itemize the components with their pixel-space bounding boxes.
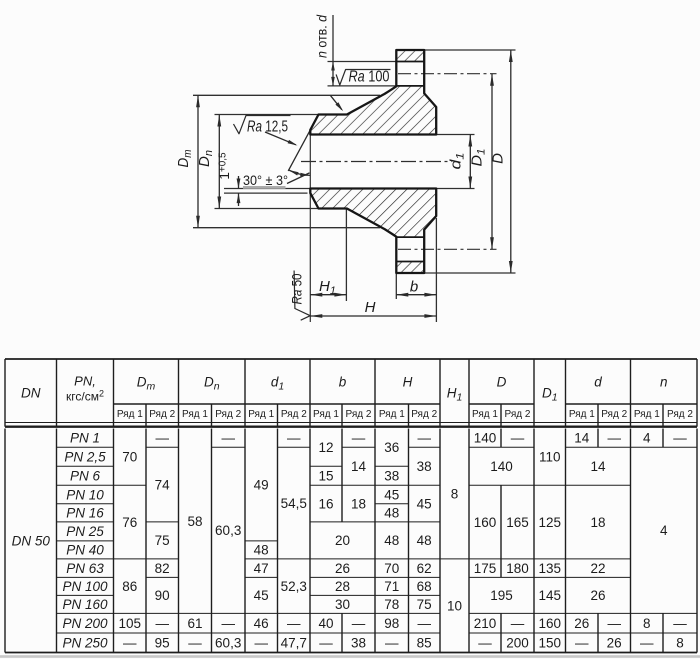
svg-text:47: 47: [254, 561, 269, 576]
svg-text:PN 6: PN 6: [70, 469, 101, 484]
svg-text:74: 74: [155, 477, 171, 492]
svg-text:22: 22: [590, 561, 605, 576]
svg-text:195: 195: [490, 588, 513, 603]
svg-text:16: 16: [318, 496, 333, 511]
svg-text:—: —: [254, 636, 268, 651]
svg-text:85: 85: [417, 636, 432, 651]
svg-text:98: 98: [384, 616, 399, 631]
svg-text:45: 45: [254, 588, 269, 603]
svg-text:—: —: [221, 616, 235, 631]
svg-text:175: 175: [474, 561, 497, 576]
svg-text:PN 25: PN 25: [66, 524, 104, 539]
svg-text:82: 82: [155, 561, 170, 576]
svg-text:90: 90: [155, 588, 170, 603]
svg-text:PN,: PN,: [74, 374, 96, 389]
svg-text:—: —: [575, 636, 589, 651]
svg-text:—: —: [287, 431, 301, 446]
svg-text:Ряд 2: Ряд 2: [346, 409, 372, 420]
svg-text:76: 76: [122, 515, 137, 530]
svg-text:38: 38: [384, 469, 399, 484]
svg-text:54,5: 54,5: [281, 496, 307, 511]
svg-text:165: 165: [506, 515, 529, 530]
svg-text:68: 68: [417, 579, 432, 594]
svg-text:n отв. d: n отв. d: [315, 15, 330, 58]
svg-text:Ряд 1: Ряд 1: [117, 409, 143, 420]
svg-text:48: 48: [417, 533, 432, 548]
svg-text:—: —: [352, 431, 366, 446]
svg-text:210: 210: [474, 616, 497, 631]
svg-text:18: 18: [590, 515, 605, 530]
svg-text:—: —: [417, 431, 431, 446]
svg-text:160: 160: [539, 616, 562, 631]
svg-text:PN 100: PN 100: [62, 579, 108, 594]
svg-text:—: —: [673, 431, 687, 446]
svg-text:—: —: [385, 636, 399, 651]
svg-text:52,3: 52,3: [281, 579, 307, 594]
svg-text:PN 250: PN 250: [62, 636, 108, 651]
svg-text:Ряд 1: Ряд 1: [313, 409, 339, 420]
svg-text:38: 38: [351, 636, 366, 651]
svg-text:30° ± 3°: 30° ± 3°: [243, 172, 288, 188]
svg-text:—: —: [511, 616, 525, 631]
svg-text:—: —: [352, 616, 366, 631]
svg-text:46: 46: [254, 616, 269, 631]
svg-text:Ряд 2: Ряд 2: [601, 409, 627, 420]
svg-text:—: —: [511, 431, 525, 446]
svg-text:86: 86: [122, 579, 137, 594]
svg-text:Ra 12,5: Ra 12,5: [247, 119, 288, 136]
svg-text:4: 4: [643, 431, 651, 446]
svg-text:—: —: [287, 616, 301, 631]
svg-text:10: 10: [447, 599, 462, 614]
svg-text:—: —: [640, 636, 654, 651]
svg-text:Ряд 1: Ряд 1: [569, 409, 595, 420]
svg-text:—: —: [417, 616, 431, 631]
svg-text:14: 14: [574, 431, 590, 446]
svg-text:15: 15: [318, 469, 333, 484]
svg-text:DN: DN: [21, 385, 41, 400]
svg-text:160: 160: [474, 515, 497, 530]
svg-text:DN 50: DN 50: [12, 533, 51, 548]
svg-text:71: 71: [384, 579, 399, 594]
svg-text:60,3: 60,3: [215, 523, 241, 538]
svg-text:Ряд 2: Ряд 2: [667, 409, 693, 420]
svg-text:—: —: [478, 636, 492, 651]
svg-text:36: 36: [384, 440, 399, 455]
svg-text:—: —: [155, 431, 169, 446]
svg-text:H: H: [365, 299, 376, 316]
svg-text:135: 135: [539, 561, 562, 576]
svg-text:75: 75: [417, 597, 432, 612]
svg-text:140: 140: [474, 431, 497, 446]
svg-text:145: 145: [539, 588, 562, 603]
svg-text:d: d: [594, 375, 602, 390]
svg-text:H: H: [403, 375, 413, 390]
svg-text:PN 10: PN 10: [66, 487, 104, 502]
svg-text:—: —: [188, 636, 202, 651]
svg-text:62: 62: [417, 561, 432, 576]
svg-text:47,7: 47,7: [281, 636, 307, 651]
svg-text:150: 150: [539, 636, 562, 651]
svg-text:70: 70: [384, 561, 399, 576]
svg-text:—: —: [155, 616, 169, 631]
svg-text:кгс/см2: кгс/см2: [66, 389, 104, 404]
svg-text:8: 8: [451, 487, 459, 502]
svg-text:n: n: [660, 375, 668, 390]
svg-text:—: —: [221, 431, 235, 446]
svg-text:Ряд 1: Ряд 1: [379, 409, 405, 420]
svg-text:75: 75: [155, 533, 170, 548]
svg-text:28: 28: [335, 579, 350, 594]
svg-text:b: b: [339, 375, 347, 390]
svg-text:PN 16: PN 16: [66, 506, 104, 521]
svg-text:26: 26: [574, 616, 589, 631]
svg-text:PN 63: PN 63: [66, 561, 104, 576]
svg-text:14: 14: [351, 459, 367, 474]
svg-text:60,3: 60,3: [215, 636, 241, 651]
svg-text:49: 49: [254, 478, 269, 493]
svg-text:PN 2,5: PN 2,5: [64, 450, 106, 465]
svg-text:110: 110: [539, 450, 561, 465]
svg-text:Ra 50: Ra 50: [289, 273, 305, 304]
svg-text:95: 95: [155, 636, 170, 651]
svg-text:D: D: [497, 375, 507, 390]
svg-text:26: 26: [607, 636, 622, 651]
svg-text:38: 38: [417, 459, 432, 474]
svg-text:26: 26: [590, 588, 605, 603]
svg-text:Ряд 2: Ряд 2: [281, 409, 307, 420]
svg-text:Ряд 1: Ряд 1: [634, 409, 660, 420]
svg-text:PN 40: PN 40: [66, 543, 104, 558]
svg-text:48: 48: [384, 506, 399, 521]
svg-text:—: —: [123, 636, 137, 651]
svg-text:26: 26: [335, 561, 350, 576]
svg-text:—: —: [607, 431, 621, 446]
svg-text:Ряд 1: Ряд 1: [182, 409, 208, 420]
svg-text:Ряд 1: Ряд 1: [472, 409, 498, 420]
svg-text:14: 14: [590, 459, 606, 474]
svg-text:200: 200: [506, 636, 529, 651]
svg-text:D: D: [490, 153, 507, 164]
svg-text:78: 78: [384, 597, 399, 612]
svg-text:45: 45: [417, 496, 432, 511]
svg-text:4: 4: [660, 523, 668, 538]
svg-text:58: 58: [187, 514, 202, 529]
svg-text:140: 140: [490, 459, 513, 474]
svg-text:48: 48: [254, 543, 269, 558]
svg-text:Ряд 2: Ряд 2: [149, 409, 175, 420]
svg-text:PN 1: PN 1: [70, 431, 100, 446]
svg-text:8: 8: [676, 636, 684, 651]
svg-text:45: 45: [384, 487, 399, 502]
svg-text:PN 200: PN 200: [62, 616, 108, 631]
svg-text:40: 40: [318, 616, 333, 631]
svg-text:61: 61: [187, 616, 202, 631]
svg-text:30: 30: [335, 597, 350, 612]
svg-text:Ряд 2: Ряд 2: [411, 409, 437, 420]
svg-text:20: 20: [335, 533, 350, 548]
svg-text:12: 12: [318, 440, 333, 455]
svg-text:8: 8: [643, 616, 651, 631]
svg-text:48: 48: [384, 533, 399, 548]
svg-text:—: —: [673, 616, 687, 631]
svg-text:180: 180: [506, 561, 529, 576]
svg-text:—: —: [607, 616, 621, 631]
svg-text:18: 18: [351, 496, 366, 511]
svg-text:—: —: [319, 636, 333, 651]
svg-text:Ra 100: Ra 100: [349, 69, 390, 86]
svg-text:125: 125: [539, 515, 562, 530]
svg-text:PN 160: PN 160: [62, 597, 108, 612]
svg-text:b: b: [410, 279, 418, 296]
svg-text:70: 70: [122, 450, 137, 465]
svg-text:Ряд 2: Ряд 2: [215, 409, 241, 420]
svg-text:105: 105: [119, 616, 142, 631]
svg-text:Ряд 2: Ряд 2: [505, 409, 531, 420]
svg-text:Ряд 1: Ряд 1: [248, 409, 274, 420]
